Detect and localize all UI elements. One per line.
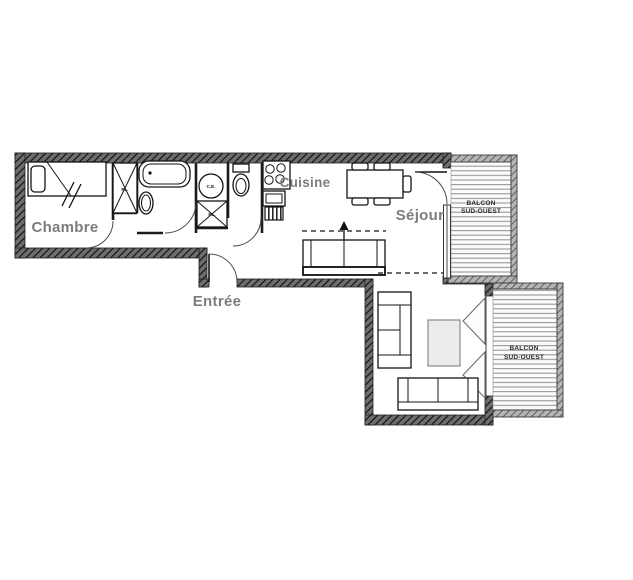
dining-chair-top-2 — [374, 163, 390, 170]
balcony-top-label-2: SUD-OUEST — [461, 208, 501, 215]
balcony-bottom-rail-right — [557, 283, 563, 417]
balcony-bottom-rail-bottom — [493, 410, 563, 417]
bedroom-furniture: PL. — [28, 162, 137, 213]
label-chambre: Chambre — [31, 219, 98, 236]
toilet-bowl — [233, 174, 249, 196]
balcony-top-rail-bottom — [448, 276, 517, 283]
wall-living-east-lower — [485, 396, 493, 425]
wall-left — [15, 153, 25, 258]
wall-sejour-east-upper — [443, 153, 451, 168]
floor-plan-page: BALCON SUD-OUEST BALCON SUD-OUEST — [0, 0, 633, 580]
coffee-table — [428, 320, 460, 366]
balcony-top-deck — [451, 162, 511, 276]
dining-chair-bottom-2 — [374, 198, 390, 205]
dining-chair-top-1 — [352, 163, 368, 170]
kitchen-fixtures — [263, 161, 290, 220]
dining-chair-right — [403, 176, 411, 192]
label-sejour: Séjour — [396, 207, 444, 224]
balcony-top-group: BALCON SUD-OUEST — [448, 155, 517, 283]
kitchen-appliance — [265, 207, 283, 220]
wall-living-bottom — [365, 415, 493, 425]
wc-door-arc — [233, 218, 261, 246]
balcony-top-rail-top — [451, 155, 517, 162]
utility-fixtures: C.E. PL. — [197, 174, 227, 227]
sofa-bed-group — [302, 221, 386, 275]
floor-plan-drawing: BALCON SUD-OUEST BALCON SUD-OUEST — [0, 0, 633, 580]
bathroom-fixtures — [139, 161, 190, 214]
entrance-door-arc — [209, 254, 237, 282]
wall-living-west — [365, 279, 373, 425]
bathroom-door-arc — [165, 202, 196, 233]
dining-table — [347, 170, 403, 198]
sofa-bed-arrow-head — [340, 221, 349, 230]
utility-closet-label: PL. — [208, 212, 215, 217]
balcony-bottom-label-1: BALCON — [509, 345, 538, 352]
wall-hall-bottom-left — [199, 279, 209, 287]
bed-pillow — [31, 166, 45, 192]
balcony-bottom-rail-top — [493, 283, 563, 289]
water-heater-label: C.E. — [207, 184, 216, 189]
dining-chair-bottom-1 — [352, 198, 368, 205]
label-entree: Entrée — [193, 293, 242, 310]
bedroom-closet-label: PL. — [121, 187, 128, 192]
bathtub-drain — [148, 171, 151, 174]
living-furniture — [378, 292, 478, 410]
balcony-bottom-label-2: SUD-OUEST — [504, 354, 544, 361]
wall-hall-bottom — [237, 279, 373, 287]
balcony-top-label-1: BALCON — [466, 200, 495, 207]
sofa-bed-back — [303, 267, 385, 275]
dining-furniture — [347, 163, 411, 205]
balcony-door-arc — [415, 172, 447, 204]
toilet-tank — [233, 164, 249, 172]
wall-bedroom-bottom — [15, 248, 207, 258]
balcony-top-rail-right — [511, 155, 517, 283]
wc-fixtures — [233, 164, 249, 196]
french-window-leaf-top — [463, 298, 485, 344]
balcony-bottom-group: BALCON SUD-OUEST — [493, 283, 563, 417]
label-cuisine: Cuisine — [280, 175, 331, 190]
